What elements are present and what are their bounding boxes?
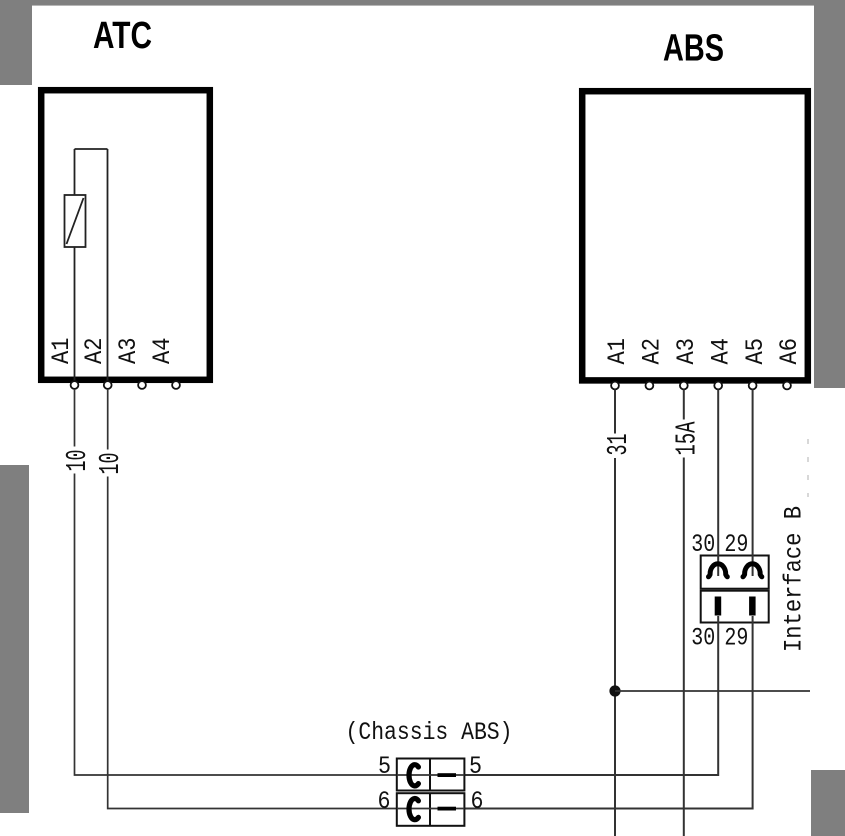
svg-text:(Chassis ABS): (Chassis ABS) — [346, 718, 513, 747]
svg-text:A5: A5 — [741, 338, 770, 365]
svg-text:10: 10 — [61, 450, 94, 472]
svg-text:ABS: ABS — [663, 28, 724, 70]
svg-text:A4: A4 — [148, 338, 177, 365]
svg-text:30: 30 — [691, 530, 715, 559]
svg-text:Interface B: Interface B — [780, 506, 809, 652]
svg-text:6: 6 — [471, 787, 484, 816]
svg-text:15A: 15A — [670, 421, 703, 455]
svg-text:A2: A2 — [638, 338, 667, 365]
svg-text:A1: A1 — [603, 338, 632, 365]
svg-text:31: 31 — [602, 434, 635, 456]
svg-text:A3: A3 — [672, 338, 701, 365]
svg-text:A1: A1 — [47, 338, 76, 365]
svg-text:ATC: ATC — [93, 15, 152, 57]
svg-text:A6: A6 — [775, 338, 804, 365]
svg-text:29: 29 — [724, 530, 748, 559]
svg-text:30: 30 — [691, 624, 715, 653]
svg-text:10: 10 — [94, 453, 127, 475]
svg-text:5: 5 — [469, 752, 482, 781]
svg-text:6: 6 — [378, 787, 391, 816]
svg-text:A2: A2 — [80, 338, 109, 365]
svg-text:A3: A3 — [114, 338, 143, 365]
svg-text:29: 29 — [724, 624, 748, 653]
svg-text:5: 5 — [378, 752, 391, 781]
svg-text:A4: A4 — [706, 338, 735, 365]
